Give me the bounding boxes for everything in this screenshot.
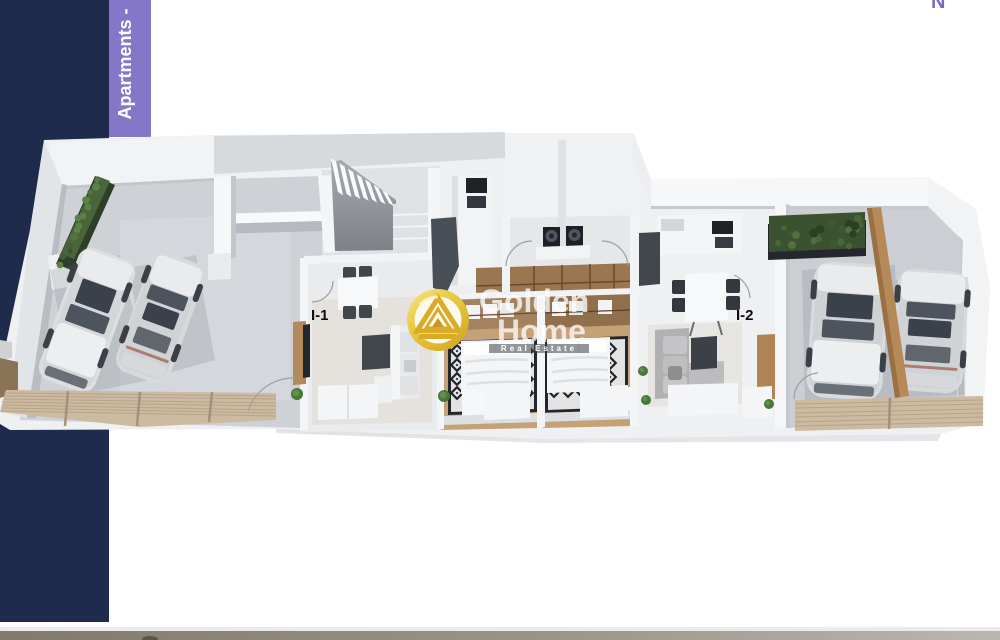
svg-text:I-1: I-1 xyxy=(311,307,329,324)
svg-text:I-2: I-2 xyxy=(736,307,754,324)
svg-text:N: N xyxy=(931,0,945,13)
svg-text:Apartments -: Apartments - xyxy=(115,8,135,119)
svg-text:Real Estate: Real Estate xyxy=(501,344,577,353)
